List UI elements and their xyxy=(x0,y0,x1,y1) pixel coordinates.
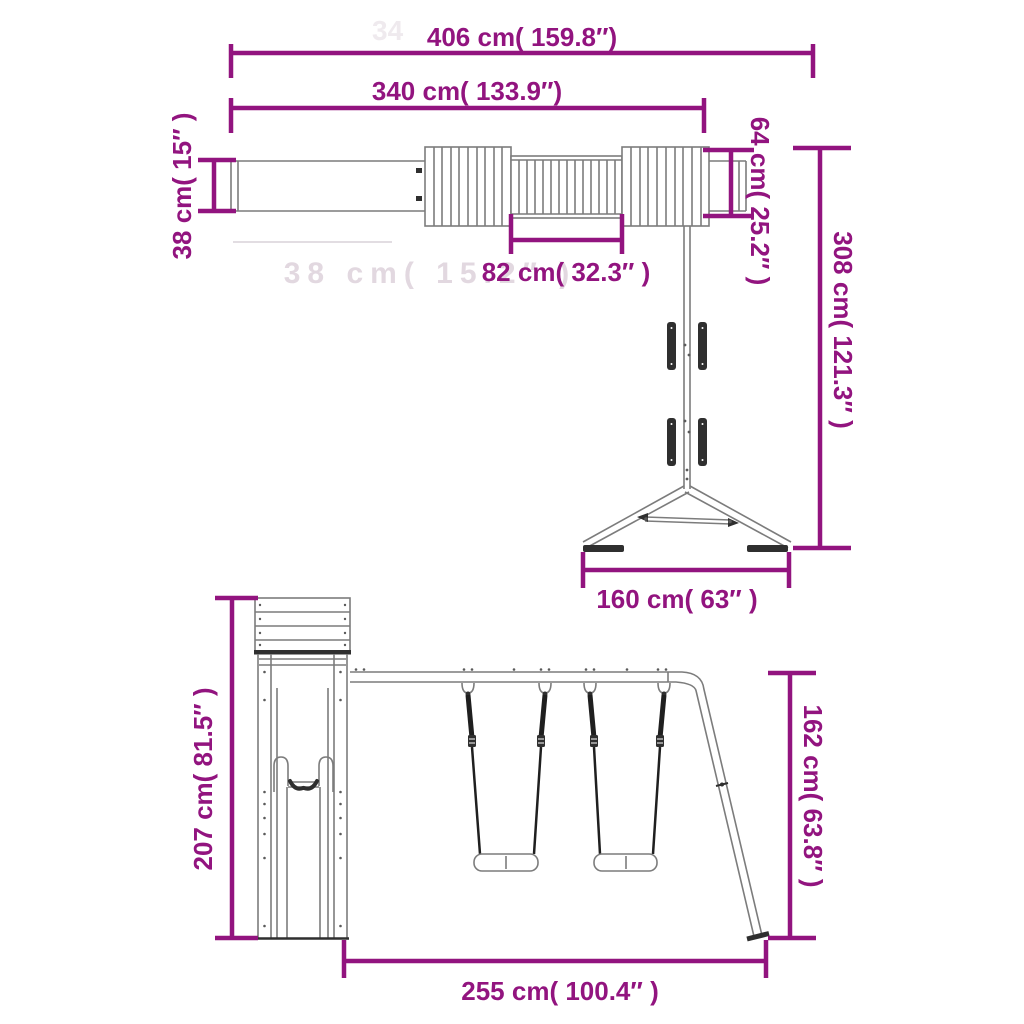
tower-platform-lines xyxy=(259,659,346,665)
support-pole xyxy=(667,226,707,489)
beam-connector-mark xyxy=(416,196,422,201)
diagram-page: 34 38 cm( 15.2″ ) xyxy=(0,0,1024,1024)
dimension-swing-base-width: 255 cm( 100.4″ ) xyxy=(344,940,766,1006)
beam-connector-mark xyxy=(416,168,422,173)
tower-roof xyxy=(254,598,351,655)
dim-tower-height-label: 207 cm( 81.5″ ) xyxy=(188,687,218,870)
dim-beam-height-label: 64 cm( 25.2″ ) xyxy=(745,117,775,286)
a-frame-foot-left xyxy=(583,545,624,552)
dim-mid-section-label: 82 cm( 32.3″ ) xyxy=(482,257,651,287)
beam-slat-block-middle xyxy=(511,156,622,218)
dim-beam-length-label: 340 cm( 133.9″) xyxy=(372,76,562,106)
rope-clamp xyxy=(656,735,664,747)
swing-strap xyxy=(590,695,594,738)
dim-overall-width-label: 406 cm( 159.8″) xyxy=(427,22,617,52)
a-frame-right-leg xyxy=(685,486,791,548)
dimension-frame-height: 162 cm( 63.8″ ) xyxy=(768,673,828,938)
swing-2 xyxy=(584,683,670,871)
swing-strap xyxy=(660,695,664,738)
a-frame-foot-right xyxy=(747,545,788,552)
beam-slat-block-left xyxy=(425,147,511,226)
dimension-tower-height: 207 cm( 81.5″ ) xyxy=(188,598,258,938)
dim-frame-height-label: 162 cm( 63.8″ ) xyxy=(798,704,828,887)
swing-rope xyxy=(472,747,541,854)
dimension-beam-length: 340 cm( 133.9″) xyxy=(231,76,704,133)
top-view-structure xyxy=(231,147,791,552)
front-view-structure xyxy=(254,598,769,939)
slide-channel xyxy=(287,782,320,938)
slide-handle-left xyxy=(274,757,288,792)
tower-left-post xyxy=(258,654,271,938)
swing-1 xyxy=(462,683,551,871)
beam-screw-dots xyxy=(355,668,668,671)
tower-right-post xyxy=(334,654,347,938)
slide-handle-right xyxy=(319,757,333,792)
dimension-overall-width: 406 cm( 159.8″) xyxy=(231,22,813,78)
rope-clamp xyxy=(537,735,545,747)
dim-overall-height-label: 308 cm( 121.3″ ) xyxy=(828,231,858,428)
pole-clamp-bracket-upper xyxy=(667,322,707,370)
a-frame-tie-bar xyxy=(645,517,731,524)
dim-end-height-label: 38 cm( 15″ ) xyxy=(167,113,197,260)
leg-foot-pad xyxy=(747,934,769,940)
beam-right-section xyxy=(709,161,746,211)
dimension-end-height: 38 cm( 15″ ) xyxy=(167,113,236,260)
swing-strap xyxy=(468,695,472,738)
top-view-dimensions: 406 cm( 159.8″) 340 cm( 133.9″) 82 cm( 3… xyxy=(167,22,858,614)
swing-strap xyxy=(541,695,545,738)
roof-edge-band xyxy=(254,650,351,655)
rope-clamp xyxy=(468,735,476,747)
beam-slat-block-right xyxy=(622,147,709,226)
ghost-text-top: 34 xyxy=(372,15,404,46)
pole-clamp-bracket-lower xyxy=(667,418,707,466)
swing-beam xyxy=(350,668,769,939)
a-frame-base xyxy=(583,486,791,552)
beam-left-section xyxy=(231,161,425,242)
dimension-base-width: 160 cm( 63″ ) xyxy=(583,552,789,614)
leg-joint-dot xyxy=(720,783,724,787)
dim-base-width-label: 160 cm( 63″ ) xyxy=(596,584,757,614)
swing-rope xyxy=(594,747,660,854)
rope-clamp xyxy=(590,735,598,747)
tower-bolt-dots xyxy=(263,671,342,928)
dimension-diagram-svg: 34 38 cm( 15.2″ ) xyxy=(0,0,1024,1024)
a-frame-left-leg xyxy=(583,486,689,548)
dim-swing-base-width-label: 255 cm( 100.4″ ) xyxy=(461,976,658,1006)
dimension-overall-height: 308 cm( 121.3″ ) xyxy=(793,148,858,548)
tower-body xyxy=(256,654,349,939)
